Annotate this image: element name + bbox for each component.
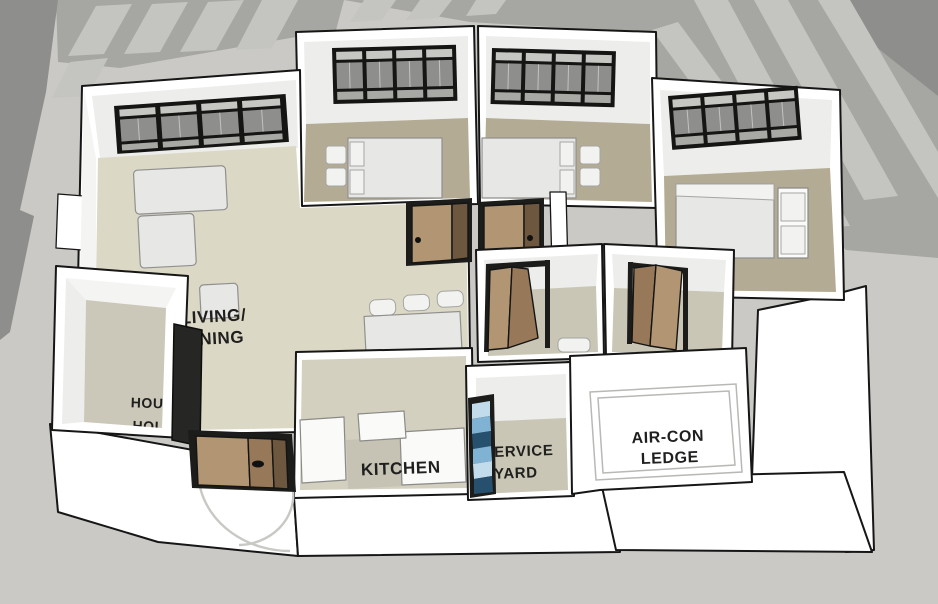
kitchen-counter-left: [300, 417, 346, 483]
door-handle: [527, 235, 533, 241]
room-service-yard: ERVICE YARD: [466, 362, 574, 500]
pillow: [560, 142, 574, 166]
window-master-bedroom: [668, 86, 802, 150]
dining-chair: [437, 290, 464, 307]
dining-chair: [403, 294, 430, 311]
pillow: [560, 170, 574, 194]
door-handle: [252, 461, 264, 468]
louvre-window-service-yard: [468, 394, 496, 498]
door-handle: [415, 237, 421, 243]
label-kitchen: KITCHEN: [361, 458, 441, 480]
room-bathroom-1: [476, 244, 604, 362]
pillow: [350, 142, 364, 166]
room-bedroom-1: [296, 26, 478, 208]
dining-chair: [369, 299, 396, 316]
floorplan-canvas: LIVING/ DINING: [0, 0, 938, 604]
living-left-ledge: [56, 194, 84, 250]
room-bedroom-2: [478, 26, 658, 208]
label-service-yard-line1: ERVICE: [494, 442, 554, 461]
door-household-shelter: [172, 324, 202, 446]
door-main-entrance: [188, 430, 296, 492]
floorplan-render: LIVING/ DINING: [0, 0, 938, 604]
kitchen-stove: [358, 411, 406, 441]
label-aircon-ledge-line2: LEDGE: [641, 449, 700, 468]
label-service-yard-line2: YARD: [494, 464, 538, 483]
window-bedroom-1: [332, 45, 457, 104]
room-bathroom-2: AI ED: [604, 244, 734, 362]
nightstand: [326, 146, 346, 164]
door-bedroom-1: [406, 198, 472, 266]
label-living-dining-line1: LIVING/: [180, 305, 246, 327]
nightstand: [326, 168, 346, 186]
room-household-shelter: HOUS HOL: [52, 266, 202, 446]
nightstand: [580, 146, 600, 164]
pillow: [350, 170, 364, 194]
bath-fixture: [558, 338, 590, 352]
window-bedroom-2: [491, 48, 616, 107]
room-aircon-ledge: AIR-CON LEDGE: [570, 348, 752, 494]
nightstand: [580, 168, 600, 186]
room-kitchen: KITCHEN: [294, 348, 474, 498]
label-aircon-ledge-line1: AIR-CON: [631, 428, 704, 448]
